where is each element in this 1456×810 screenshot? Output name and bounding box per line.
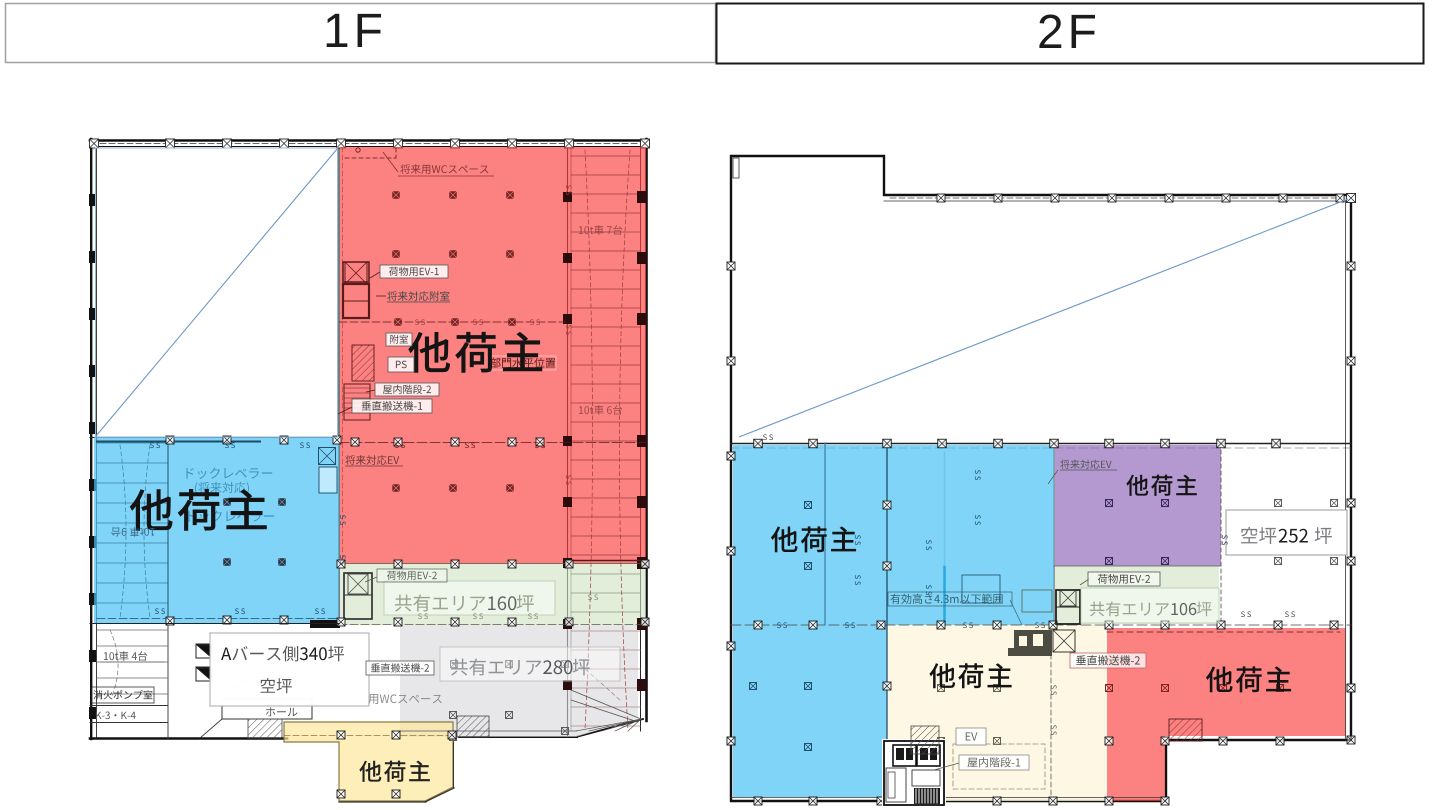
svg-text:2F: 2F: [1037, 6, 1101, 59]
svg-text:1F: 1F: [323, 5, 387, 58]
